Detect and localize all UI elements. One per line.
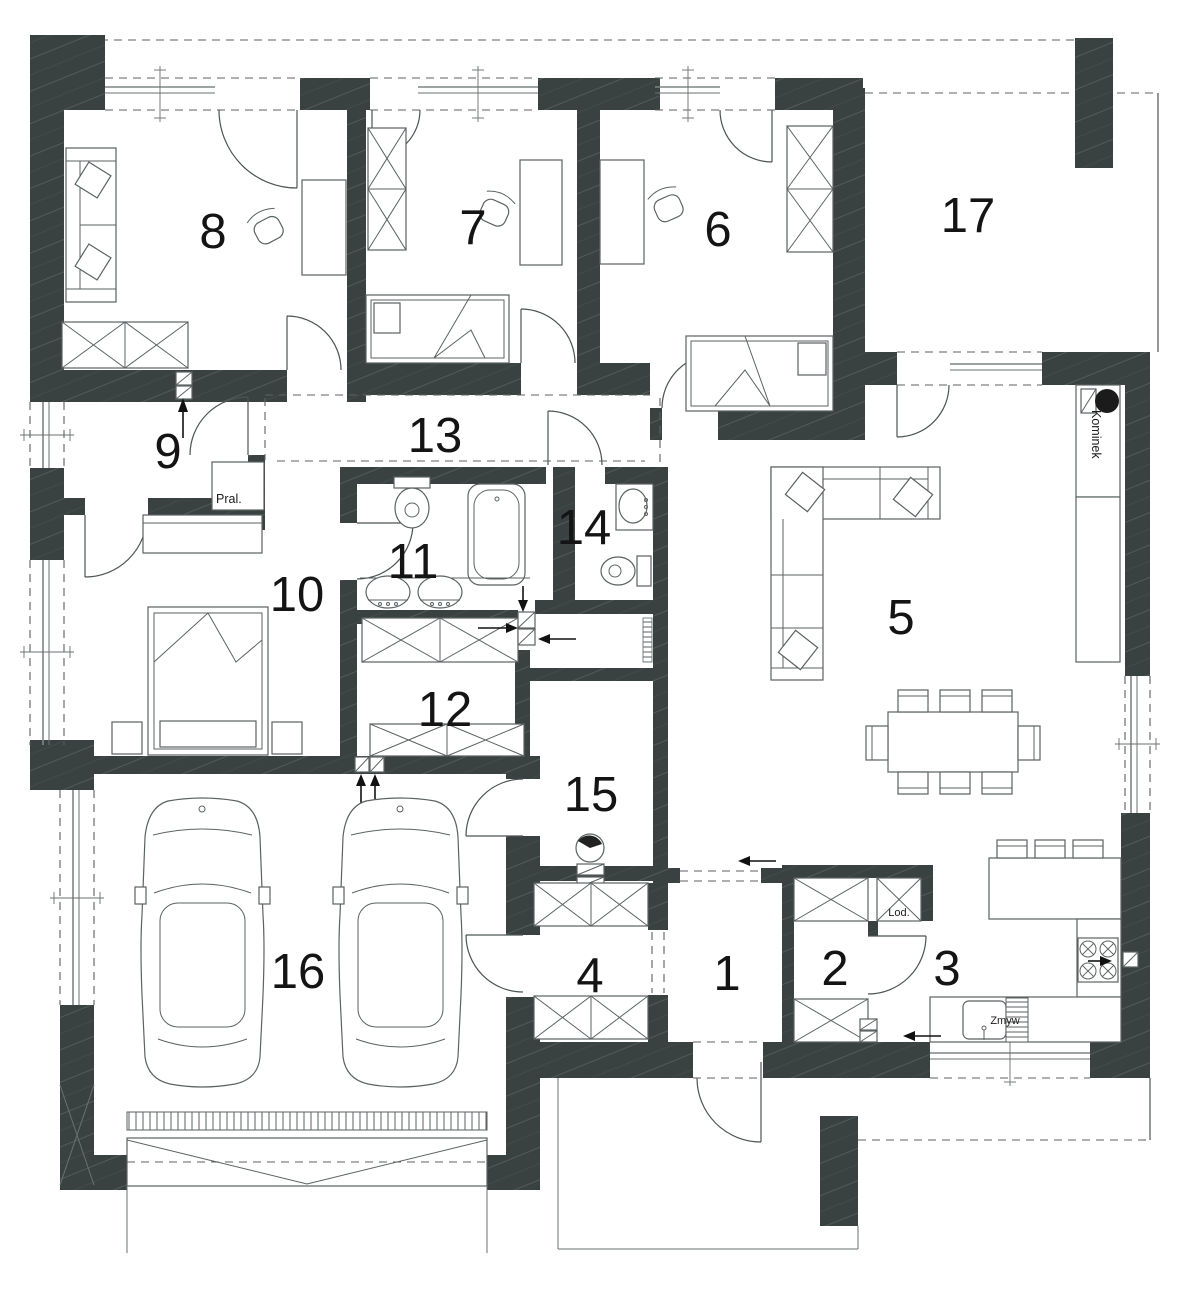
room-label-3: 3 [933, 942, 960, 996]
toilet-icon [601, 556, 651, 586]
room-label-2: 2 [821, 942, 848, 996]
wardrobe-icon [794, 878, 868, 921]
wardrobe-icon [368, 128, 406, 250]
dresser-icon [62, 322, 188, 368]
dishwasher-label: Zmyw [990, 1015, 1019, 1027]
desk-icon [600, 160, 644, 264]
washing-machine-label: Pral. [216, 492, 242, 506]
office-chair-icon [646, 183, 687, 225]
floor-plan: 1 2 3 4 5 6 7 8 9 10 11 12 13 14 15 16 1… [0, 0, 1180, 1294]
entry-porch [558, 1078, 858, 1249]
dining-table-icon [866, 690, 1040, 794]
desk-icon [520, 160, 562, 265]
room-label-16: 16 [271, 945, 326, 999]
dresser-icon [143, 515, 262, 553]
car-icon [333, 798, 468, 1087]
room-label-13: 13 [408, 409, 463, 463]
floor-plan-page: 1 2 3 4 5 6 7 8 9 10 11 12 13 14 15 16 1… [0, 0, 1180, 1294]
room-label-11: 11 [388, 535, 439, 589]
room-label-1: 1 [713, 947, 740, 1001]
room-label-7: 7 [459, 201, 486, 255]
garage-door [127, 1112, 487, 1253]
wardrobe-icon [794, 999, 868, 1042]
bathtub-icon [468, 484, 525, 585]
desk-icon [302, 180, 346, 275]
fireplace-label: Kominek [1089, 410, 1103, 459]
room-label-5: 5 [887, 591, 914, 645]
sofa-icon [66, 148, 116, 302]
kitchen-island-icon [989, 840, 1121, 919]
corner-sink-icon [616, 484, 653, 530]
room-label-14: 14 [557, 501, 612, 555]
room-label-12: 12 [418, 683, 473, 737]
room-label-17: 17 [941, 189, 996, 243]
room-label-9: 9 [154, 425, 181, 479]
radiator-icon [643, 618, 652, 662]
room-label-4: 4 [576, 949, 603, 1003]
stove-icon [1078, 938, 1118, 982]
wardrobe-icon [787, 126, 833, 252]
bed-icon [366, 295, 509, 363]
wardrobe-icon [534, 883, 648, 926]
double-bed-icon [112, 607, 302, 755]
room-label-15: 15 [564, 768, 619, 822]
bed-icon [686, 336, 833, 411]
room-label-6: 6 [704, 203, 731, 257]
toilet-icon [394, 477, 430, 528]
office-chair-icon [245, 205, 287, 248]
fridge-label: Lod. [888, 907, 909, 919]
wardrobe-icon [362, 618, 518, 662]
car-icon [135, 798, 270, 1087]
room-label-10: 10 [270, 568, 325, 622]
corner-sofa-icon [771, 467, 940, 680]
room-label-8: 8 [199, 205, 226, 259]
water-heater-icon [576, 834, 604, 888]
